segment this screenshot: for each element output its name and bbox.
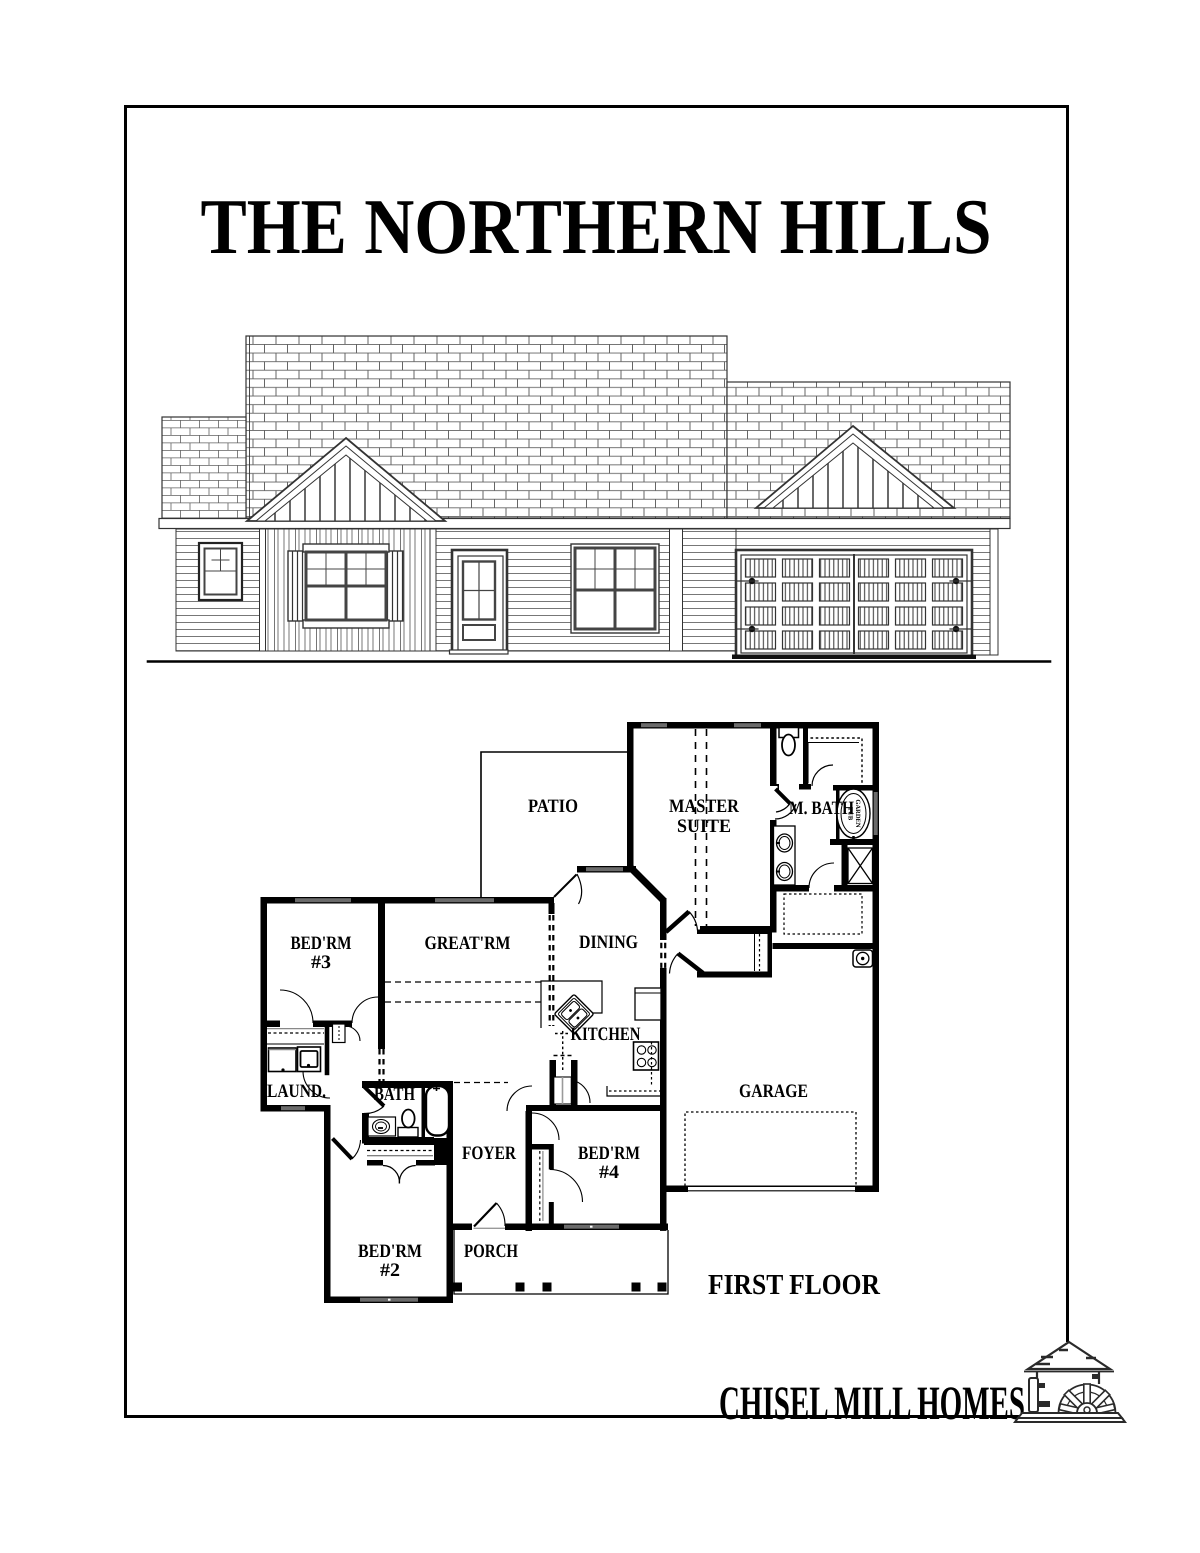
svg-text:BED'RM: BED'RM	[578, 1143, 640, 1164]
svg-text:MASTER: MASTER	[669, 796, 739, 817]
svg-text:GARDEN: GARDEN	[854, 799, 861, 827]
svg-text:FOYER: FOYER	[462, 1143, 516, 1164]
svg-text:SUITE: SUITE	[677, 816, 731, 837]
svg-text:PORCH: PORCH	[464, 1241, 518, 1262]
svg-text:CHISEL MILL HOMES: CHISEL MILL HOMES	[719, 1377, 1025, 1430]
svg-text:PATIO: PATIO	[528, 796, 578, 817]
svg-text:GARAGE: GARAGE	[739, 1081, 808, 1102]
svg-text:BED'RM: BED'RM	[291, 933, 352, 954]
svg-text:#3: #3	[311, 952, 331, 973]
svg-text:BATH: BATH	[374, 1084, 415, 1105]
svg-text:LAUND.: LAUND.	[267, 1081, 326, 1102]
svg-text:THE NORTHERN HILLS: THE NORTHERN HILLS	[201, 184, 992, 271]
svg-text:BED'RM: BED'RM	[358, 1241, 422, 1262]
svg-text:DINING: DINING	[579, 932, 638, 953]
svg-text:KITCHEN: KITCHEN	[571, 1024, 641, 1045]
svg-text:GREAT'RM: GREAT'RM	[425, 933, 511, 954]
svg-text:#4: #4	[599, 1162, 620, 1183]
svg-text:#2: #2	[380, 1260, 400, 1281]
svg-text:M. BATH: M. BATH	[789, 798, 854, 819]
svg-text:FIRST FLOOR: FIRST FLOOR	[708, 1269, 881, 1301]
